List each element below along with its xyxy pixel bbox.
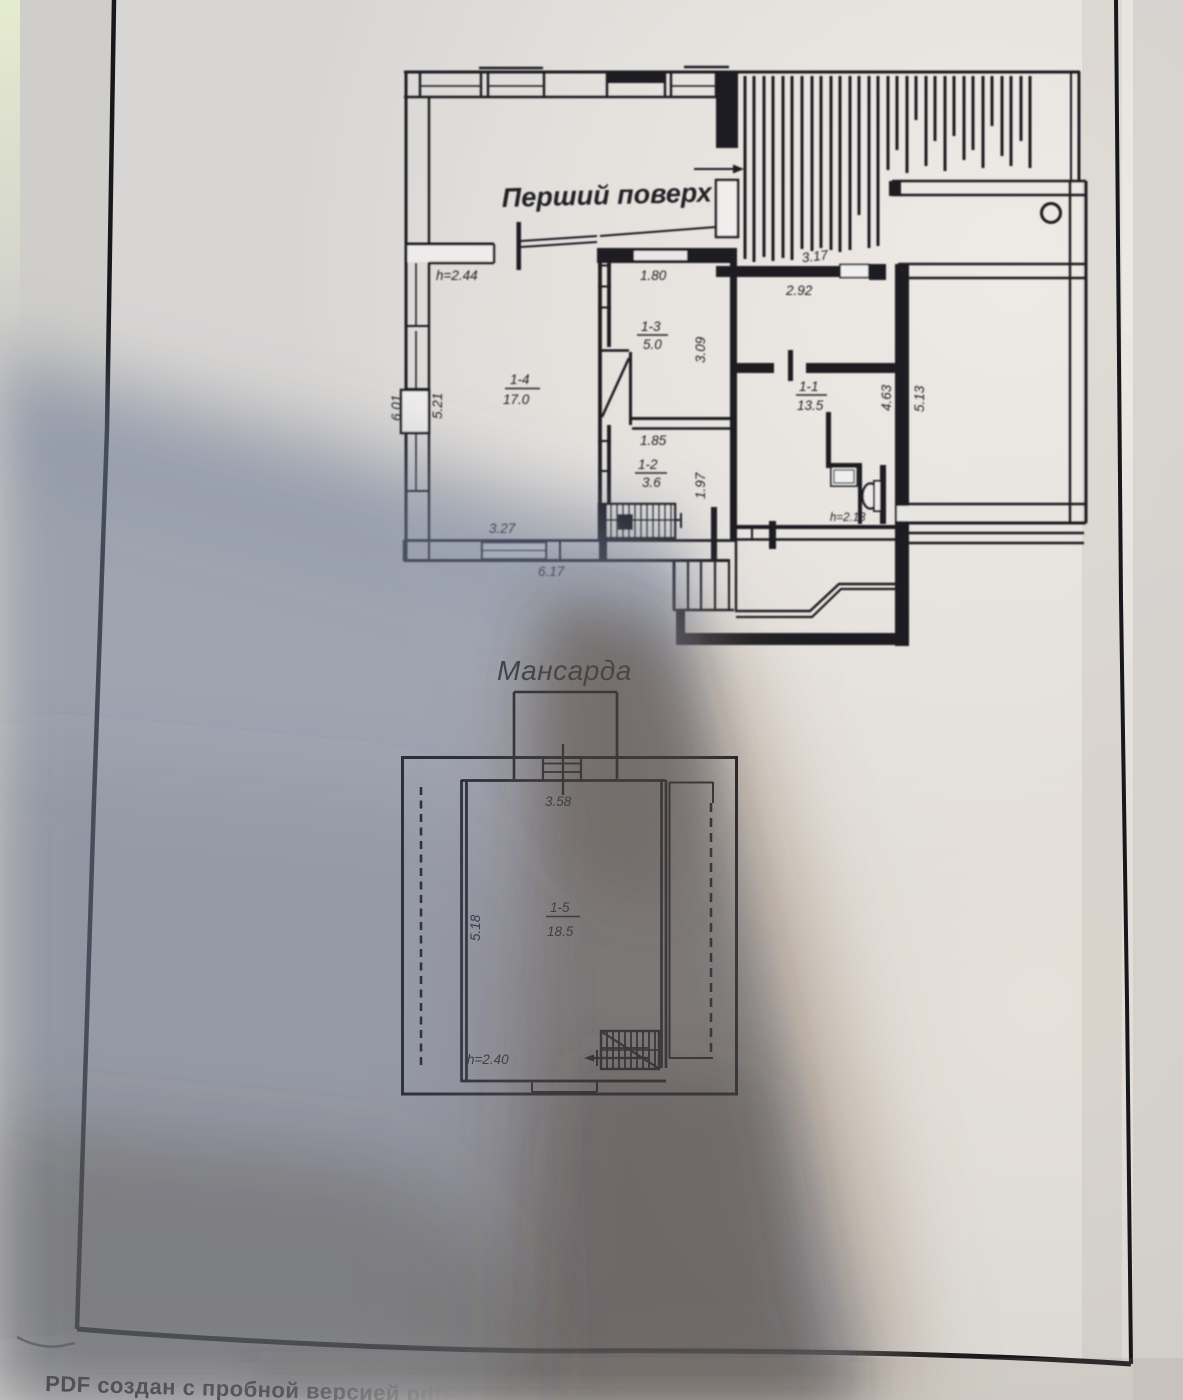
svg-text:2.92: 2.92 [785, 283, 813, 298]
svg-text:1-1: 1-1 [799, 379, 819, 394]
svg-text:1.97: 1.97 [693, 472, 708, 499]
svg-text:5.13: 5.13 [912, 385, 927, 412]
svg-text:h=2.13: h=2.13 [830, 512, 866, 524]
svg-text:3.09: 3.09 [693, 336, 708, 363]
svg-text:13.5: 13.5 [797, 398, 824, 413]
svg-text:4.63: 4.63 [879, 384, 894, 411]
